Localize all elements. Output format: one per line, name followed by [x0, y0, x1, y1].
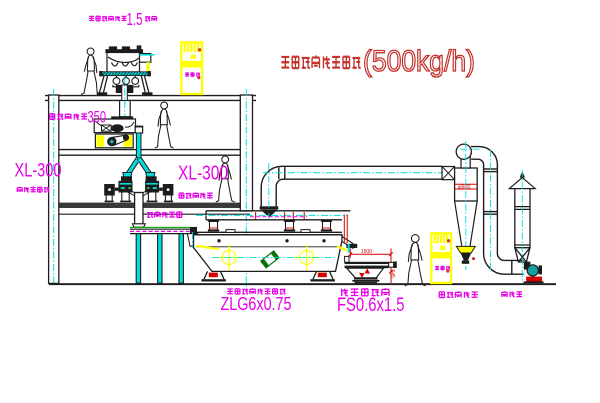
svg-text:1.5: 1.5	[127, 9, 143, 29]
svg-text:(500kg/h): (500kg/h)	[363, 45, 475, 78]
svg-text:ZLG6x0.75: ZLG6x0.75	[221, 293, 292, 314]
svg-text:φ600: φ600	[458, 184, 471, 190]
svg-text:XL-300: XL-300	[15, 161, 62, 182]
svg-text:FS0.6x1.5: FS0.6x1.5	[337, 294, 405, 316]
svg-text:545: 545	[389, 270, 395, 279]
svg-text:350: 350	[88, 108, 107, 127]
svg-text:1500: 1500	[361, 249, 372, 255]
svg-text:XL-300: XL-300	[178, 163, 228, 185]
